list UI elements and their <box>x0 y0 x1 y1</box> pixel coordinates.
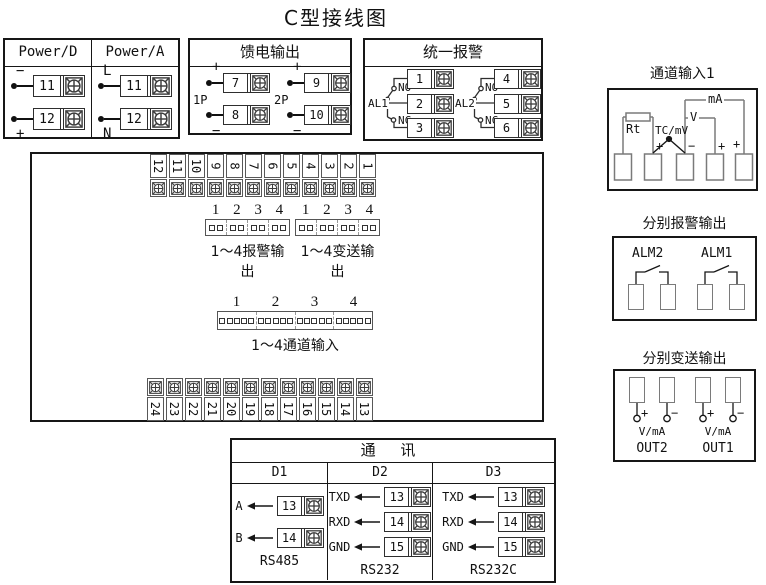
strip-terminal-3: 3 <box>321 154 338 197</box>
terminal-13: 13 <box>384 487 431 507</box>
channel-input-label: 通道输入1 <box>607 63 758 83</box>
screw <box>223 378 240 396</box>
output-terminal <box>725 377 741 403</box>
pin <box>326 318 332 324</box>
terminal-13: 13 <box>498 487 545 507</box>
strip-terminal-8: 8 <box>226 154 243 197</box>
comm-pin-RXD: RXD14 <box>329 512 432 532</box>
connector-cell-3 <box>247 220 268 235</box>
strip-terminal-12: 12 <box>150 154 167 197</box>
screw-terminal-icon <box>301 381 314 394</box>
connector-body <box>205 219 290 236</box>
strip-terminal-23: 23 <box>166 378 183 421</box>
screw <box>302 179 319 197</box>
wire <box>17 118 33 120</box>
output-terminal <box>695 377 711 403</box>
pin <box>357 318 363 324</box>
screw-terminal-icon <box>527 514 543 530</box>
polarity-label: − <box>16 64 24 78</box>
screw-terminal-icon <box>206 381 219 394</box>
alarm-output-label: 分别报警输出 <box>612 213 757 233</box>
wire <box>212 114 223 116</box>
screw <box>185 378 202 396</box>
pin <box>234 318 240 324</box>
screw-terminal-icon <box>434 70 453 88</box>
signal-label: B <box>235 531 242 545</box>
terminal-number: 14 <box>337 397 354 421</box>
strip-terminal-7: 7 <box>245 154 262 197</box>
unified-alarm-box: 统一报警 AL1 NO NC 1 2 3 <box>363 38 543 141</box>
terminal-number: 4 <box>302 154 319 178</box>
standard-label: RS232 <box>360 563 399 578</box>
connector-label: 1～4通道输入 <box>217 335 373 355</box>
connector-body <box>295 219 380 236</box>
top-terminal-strip: 121110987654321 <box>150 154 378 197</box>
wire <box>212 82 223 84</box>
terminal-number: 1 <box>359 154 376 178</box>
relay-alm2: ALM2 <box>624 246 680 310</box>
screw-terminal-icon <box>525 488 544 506</box>
pin <box>319 318 325 324</box>
strip-terminal-20: 20 <box>223 378 240 421</box>
screw-terminal-icon <box>150 109 171 129</box>
screw-terminal-icon <box>413 489 429 505</box>
signal-label: TXD <box>442 490 464 504</box>
pin <box>304 318 310 324</box>
terminal-number: 2 <box>340 154 357 178</box>
pin <box>341 225 347 231</box>
screw-terminal-icon <box>434 95 453 113</box>
pin <box>328 225 334 231</box>
screw-terminal-icon <box>168 381 181 394</box>
polarity-label: − <box>212 124 220 138</box>
terminal-14: 14 <box>384 512 431 532</box>
terminal-number: 7 <box>245 154 262 178</box>
screw-terminal-icon <box>152 182 165 195</box>
signal-label: GND <box>442 540 464 554</box>
terminal-11: 11 <box>33 75 85 97</box>
connector-numbers: 1234 <box>295 202 380 219</box>
screw-terminal-icon <box>285 182 298 195</box>
channel-input-box: Rt TC/mV V mA + − + + <box>607 88 758 191</box>
screw-terminal-icon <box>149 381 162 394</box>
polarity-label: − <box>737 407 744 419</box>
strip-terminal-4: 4 <box>302 154 319 197</box>
c-type-wiring-diagram: C型接线图 Power/D Power/A − 11 + 12 <box>0 0 766 585</box>
pin-list: TXD13RXD14GND15 <box>329 487 432 557</box>
terminal-7: 7 <box>223 73 270 93</box>
strip-terminal-17: 17 <box>280 378 297 421</box>
pin <box>227 318 233 324</box>
relay-al2: AL2 NO NC 4 5 6 <box>457 69 541 139</box>
output-out1: + − V/mA OUT1 <box>689 377 747 457</box>
terminal-number: 10 <box>188 154 205 178</box>
pin <box>349 225 355 231</box>
communication-box: 通 讯 D1 A13B14 RS485 D2 TXD13RXD14GND15 R… <box>230 438 556 583</box>
terminal-number: 12 <box>150 154 167 178</box>
unified-alarm-title: 统一报警 <box>365 40 541 67</box>
terminal-row: L 11 <box>98 75 172 97</box>
comm-pin-B: B14 <box>235 528 323 548</box>
output-label: OUT1 <box>689 441 747 456</box>
terminal-row: + 12 <box>11 108 85 130</box>
screw-terminal-icon <box>171 182 184 195</box>
arrow-left-icon <box>246 533 274 543</box>
polarity-label: + <box>212 60 220 74</box>
screw <box>261 378 278 396</box>
polarity-label: + <box>733 138 740 150</box>
pin <box>320 225 326 231</box>
relay-label: AL1 <box>367 98 389 109</box>
terminal-14: 14 <box>277 528 324 548</box>
pin <box>273 318 279 324</box>
screw <box>264 179 281 197</box>
screw-terminal-icon <box>304 497 323 515</box>
screw-terminal-icon <box>413 514 429 530</box>
pin <box>259 225 265 231</box>
terminal-row: N 12 <box>98 108 172 130</box>
screw <box>188 179 205 197</box>
terminal-number: 19 <box>242 397 259 421</box>
contact-terminal <box>697 284 713 310</box>
output-terminal <box>659 377 675 403</box>
screw-terminal-icon <box>63 76 84 96</box>
strip-terminal-19: 19 <box>242 378 259 421</box>
terminal-number: 20 <box>223 397 240 421</box>
transmit-output-label: 分别变送输出 <box>613 348 756 368</box>
relay-label: AL2 <box>454 98 476 109</box>
screw-terminal-icon <box>521 119 540 137</box>
terminal-number: 21 <box>204 397 221 421</box>
section-header: D3 <box>433 463 554 484</box>
output-terminal <box>629 377 645 403</box>
pin <box>241 318 247 324</box>
screw <box>204 378 221 396</box>
screw <box>359 179 376 197</box>
connector-cell-4 <box>268 220 289 235</box>
pin <box>251 225 257 231</box>
screw <box>321 179 338 197</box>
terminal-row: − 8 <box>206 104 270 126</box>
connector-label: 1～4变送输出 <box>295 241 380 281</box>
screw-terminal-icon <box>358 381 371 394</box>
screw <box>147 378 164 396</box>
ma-label: mA <box>706 93 724 105</box>
polarity-label: + <box>641 407 648 419</box>
terminal-8: 8 <box>223 105 270 125</box>
terminal-15: 15 <box>498 537 545 557</box>
screw <box>150 179 167 197</box>
polarity-label: L <box>103 64 111 78</box>
terminal-9: 9 <box>304 73 351 93</box>
screw <box>356 378 373 396</box>
arrow-left-icon <box>353 492 381 502</box>
relay-alm1: ALM1 <box>693 246 749 310</box>
screw <box>340 179 357 197</box>
screw-terminal-icon <box>190 182 203 195</box>
section-header: D1 <box>232 463 327 484</box>
connector-cell-1 <box>206 220 226 235</box>
terminal-number: 6 <box>264 154 281 178</box>
polarity-label: + <box>16 127 24 141</box>
contact-terminal <box>729 284 745 310</box>
strip-terminal-5: 5 <box>283 154 300 197</box>
screw-terminal-icon <box>521 95 540 113</box>
connector-cell-3 <box>295 312 334 329</box>
arrow-left-icon <box>467 542 495 552</box>
signal-label: TXD <box>329 490 351 504</box>
contact-terminal <box>660 284 676 310</box>
connector-cell-4 <box>333 312 372 329</box>
terminal-row: + 9 <box>287 72 351 94</box>
comm-section-d2: D2 TXD13RXD14GND15 RS232 <box>327 463 432 580</box>
pin-list: TXD13RXD14GND15 <box>442 487 545 557</box>
pin <box>272 225 278 231</box>
pin <box>311 318 317 324</box>
section-header: D2 <box>328 463 432 484</box>
relay-al1: AL1 NO NC 1 2 3 <box>370 69 454 139</box>
terminal-number: 11 <box>169 154 186 178</box>
screw-terminal-icon <box>331 106 350 124</box>
strip-terminal-24: 24 <box>147 378 164 421</box>
terminal-number: 5 <box>283 154 300 178</box>
unit-label: V/mA <box>689 425 747 438</box>
terminal-number: 18 <box>261 397 278 421</box>
screw-terminal-icon <box>250 74 269 92</box>
polarity-label: + <box>656 140 663 152</box>
terminal-11: 11 <box>120 75 172 97</box>
relay-contact <box>693 264 749 284</box>
polarity-label: + <box>293 60 301 74</box>
strip-terminal-1: 1 <box>359 154 376 197</box>
terminal-row: + 7 <box>206 72 270 94</box>
terminal-number: 8 <box>226 154 243 178</box>
wire <box>104 118 120 120</box>
alarm-output-connector: 12341～4报警输出 <box>205 202 290 281</box>
polarity-label: + <box>718 140 725 152</box>
screw-terminal-icon <box>228 182 241 195</box>
terminal-row: − 10 <box>287 104 351 126</box>
terminal-number: 16 <box>299 397 316 421</box>
tc-mv-label: TC/mV <box>655 125 688 136</box>
screw-terminal-icon <box>209 182 222 195</box>
pin <box>365 318 371 324</box>
strip-terminal-13: 13 <box>356 378 373 421</box>
polarity-label: − <box>671 407 678 419</box>
pin <box>265 318 271 324</box>
screw <box>299 378 316 396</box>
terminal-14: 14 <box>498 512 545 532</box>
arrow-left-icon <box>246 501 274 511</box>
screw-terminal-icon <box>411 513 430 531</box>
pin <box>248 318 254 324</box>
comm-pin-GND: GND15 <box>329 537 432 557</box>
terminal-number: 13 <box>356 397 373 421</box>
terminal-3: 3 <box>407 118 454 138</box>
terminal-2: 2 <box>407 94 454 114</box>
wire <box>104 85 120 87</box>
terminal-row: − 11 <box>11 75 85 97</box>
screw-terminal-icon <box>411 488 430 506</box>
standard-label: RS485 <box>260 554 299 569</box>
signal-label: GND <box>329 540 351 554</box>
pin <box>217 225 223 231</box>
screw-terminal-icon <box>413 539 429 555</box>
alarm-output-box: ALM2 ALM1 <box>612 236 757 321</box>
screw <box>242 378 259 396</box>
terminal-number: 9 <box>207 154 224 178</box>
pin <box>350 318 356 324</box>
screw <box>337 378 354 396</box>
terminal-number: 3 <box>321 154 338 178</box>
pin <box>362 225 368 231</box>
terminal-15: 15 <box>384 537 431 557</box>
connector-cell-2 <box>316 220 337 235</box>
arrow-left-icon <box>467 492 495 502</box>
screw <box>226 179 243 197</box>
comm-section-d1: D1 A13B14 RS485 <box>232 463 327 580</box>
screw-terminal-icon <box>150 76 171 96</box>
power-a-column: L 11 N 12 <box>92 67 178 137</box>
screw-terminal-icon <box>411 538 430 556</box>
screw-terminal-icon <box>521 70 540 88</box>
terminal-number: 24 <box>147 397 164 421</box>
connector-label: 1～4报警输出 <box>205 241 290 281</box>
connector-cell-1 <box>296 220 316 235</box>
pin <box>336 318 342 324</box>
arrow-left-icon <box>353 517 381 527</box>
transmit-output-box: + − V/mA OUT2 + − V/mA OUT1 <box>613 369 756 462</box>
comm-pin-TXD: TXD13 <box>442 487 545 507</box>
polarity-label: − <box>293 124 301 138</box>
pin <box>307 225 313 231</box>
connector-body <box>217 311 373 330</box>
comm-pin-GND: GND15 <box>442 537 545 557</box>
screw-terminal-icon <box>266 182 279 195</box>
polarity-label: + <box>707 407 714 419</box>
connector-cell-3 <box>337 220 358 235</box>
screw <box>245 179 262 197</box>
strip-terminal-9: 9 <box>207 154 224 197</box>
wire <box>293 82 304 84</box>
pin <box>299 225 305 231</box>
terminal-10: 10 <box>304 105 351 125</box>
screw-terminal-icon <box>244 381 257 394</box>
screw-terminal-icon <box>304 182 317 195</box>
strip-terminal-15: 15 <box>318 378 335 421</box>
screw-terminal-icon <box>225 381 238 394</box>
power-d-column: − 11 + 12 <box>5 67 92 137</box>
screw-terminal-icon <box>525 513 544 531</box>
polarity-label: − <box>688 140 695 152</box>
signal-label: RXD <box>442 515 464 529</box>
standard-label: RS232C <box>470 563 517 578</box>
pin <box>343 318 349 324</box>
wire <box>17 85 33 87</box>
screw <box>207 179 224 197</box>
wire <box>293 114 304 116</box>
comm-pin-A: A13 <box>235 496 323 516</box>
pin <box>280 318 286 324</box>
screw <box>166 378 183 396</box>
screw-terminal-icon <box>323 182 336 195</box>
pin <box>230 225 236 231</box>
screw-terminal-icon <box>263 381 276 394</box>
relay-contact <box>624 264 680 284</box>
connector-cell-1 <box>218 312 256 329</box>
terminal-6: 6 <box>494 118 541 138</box>
screw-terminal-icon <box>304 529 323 547</box>
output-out2: + − V/mA OUT2 <box>623 377 681 457</box>
bottom-terminal-strip: 242322212019181716151413 <box>147 378 375 421</box>
screw-terminal-icon <box>527 489 543 505</box>
strip-terminal-10: 10 <box>188 154 205 197</box>
screw <box>169 179 186 197</box>
screw-terminal-icon <box>525 538 544 556</box>
feed-group-1p: 1P + 7 − 8 <box>193 67 271 133</box>
terminal-12: 12 <box>120 108 172 130</box>
screw <box>283 179 300 197</box>
strip-terminal-18: 18 <box>261 378 278 421</box>
screw-terminal-icon <box>434 119 453 137</box>
terminal-number: 22 <box>185 397 202 421</box>
comm-section-d3: D3 TXD13RXD14GND15 RS232C <box>432 463 554 580</box>
terminal-1: 1 <box>407 69 454 89</box>
strip-terminal-6: 6 <box>264 154 281 197</box>
communication-title: 通 讯 <box>232 440 554 463</box>
channel-input-connector: 12341～4通道输入 <box>217 294 373 355</box>
screw <box>318 378 335 396</box>
connector-numbers: 1234 <box>205 202 290 219</box>
pin <box>370 225 376 231</box>
strip-terminal-14: 14 <box>337 378 354 421</box>
pin-list: A13B14 <box>235 496 323 548</box>
pin <box>209 225 215 231</box>
feed-group-2p: 2P + 9 − 10 <box>274 67 352 133</box>
screw <box>280 378 297 396</box>
screw-terminal-icon <box>320 381 333 394</box>
terminal-5: 5 <box>494 94 541 114</box>
comm-pin-TXD: TXD13 <box>329 487 432 507</box>
screw-terminal-icon <box>187 381 200 394</box>
screw-terminal-icon <box>361 182 374 195</box>
terminal-number: 17 <box>280 397 297 421</box>
connector-cell-4 <box>358 220 379 235</box>
v-label: V <box>688 111 699 123</box>
strip-terminal-21: 21 <box>204 378 221 421</box>
screw-terminal-icon <box>306 498 322 514</box>
terminal-number: 23 <box>166 397 183 421</box>
relay-label: ALM1 <box>701 246 732 261</box>
transmit-output-connector: 12341～4变送输出 <box>295 202 380 281</box>
strip-terminal-22: 22 <box>185 378 202 421</box>
screw-terminal-icon <box>247 182 260 195</box>
screw-terminal-icon <box>342 182 355 195</box>
pin <box>280 225 286 231</box>
connector-cell-2 <box>226 220 247 235</box>
terminal-number: 15 <box>318 397 335 421</box>
screw-terminal-icon <box>339 381 352 394</box>
screw-terminal-icon <box>250 106 269 124</box>
connector-numbers: 1234 <box>217 294 373 311</box>
relay-label: ALM2 <box>632 246 663 261</box>
screw-terminal-icon <box>63 109 84 129</box>
output-label: OUT2 <box>623 441 681 456</box>
contact-terminal <box>628 284 644 310</box>
signal-label: RXD <box>329 515 351 529</box>
polarity-label: N <box>103 127 111 141</box>
connector-cell-2 <box>256 312 295 329</box>
